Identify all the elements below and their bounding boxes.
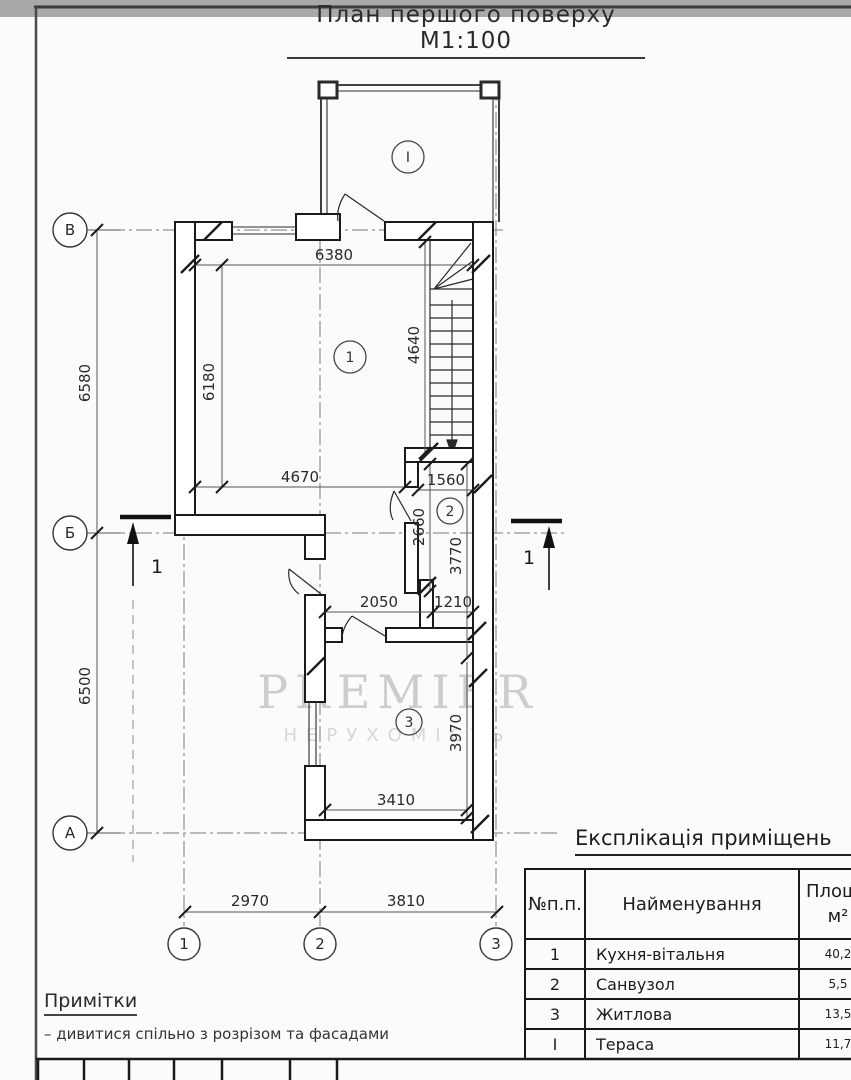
- room-label-terrace: I: [406, 150, 410, 166]
- axis-label-row: В: [65, 221, 75, 239]
- door-leaf-bathroom: [394, 491, 411, 521]
- title-block: [36, 1059, 851, 1080]
- wall: [175, 515, 325, 535]
- terrace-pillar-left: [319, 82, 337, 98]
- wall: [405, 462, 418, 487]
- dimension-label: 4640: [405, 326, 423, 364]
- dimension-label: 6580: [76, 364, 94, 402]
- room-number: I: [525, 1029, 585, 1059]
- dimension-label: 6500: [76, 667, 94, 705]
- room-area: 11,7: [799, 1029, 851, 1059]
- dimension-label: 1210: [434, 593, 472, 611]
- scanned-floor-plan-page: { "title": "План першого поверху М1:100"…: [0, 0, 851, 1080]
- explication-title: Експлікація приміщень: [575, 826, 851, 856]
- explication-header-row: №п.п. Найменування Площа м²: [525, 869, 851, 939]
- room-number: 1: [525, 939, 585, 969]
- column-header-name: Найменування: [585, 869, 799, 939]
- axis-label-row: А: [65, 824, 76, 842]
- room-name: Санвузол: [585, 969, 799, 999]
- notes-title: Примітки: [44, 990, 137, 1016]
- table-row: 3 Житлова 13,5: [525, 999, 851, 1029]
- column-header-num: №п.п.: [525, 869, 585, 939]
- room-area: 40,2: [799, 939, 851, 969]
- staircase: [430, 240, 473, 455]
- section-arrow: [543, 526, 555, 548]
- dimension-label: 6380: [315, 246, 353, 264]
- dimension-label: 3770: [447, 537, 465, 575]
- axis-markers: [53, 213, 512, 960]
- room-name: Тераса: [585, 1029, 799, 1059]
- walls: [175, 214, 493, 840]
- explication-table: №п.п. Найменування Площа м² 1 Кухня-віта…: [524, 868, 851, 1060]
- room-label-bath: 2: [446, 504, 455, 520]
- room-name: Кухня-вітальня: [585, 939, 799, 969]
- wall: [473, 222, 493, 840]
- room-label-living: 3: [405, 715, 414, 731]
- wall: [325, 628, 342, 642]
- room-name: Житлова: [585, 999, 799, 1029]
- section-label: 1: [523, 547, 535, 569]
- axis-label-col: 3: [491, 935, 501, 953]
- wall: [305, 595, 325, 702]
- room-area: 5,5: [799, 969, 851, 999]
- door-leaf-entrance: [289, 569, 321, 594]
- dimension-label: 4670: [281, 468, 319, 486]
- dimension-label: 3810: [387, 892, 425, 910]
- door-swing-living: [342, 616, 352, 636]
- room-label-kitchen: 1: [346, 350, 355, 366]
- dimension-label: 2050: [360, 593, 398, 611]
- axis-label-col: 1: [179, 935, 189, 953]
- door-swing-bathroom: [390, 491, 394, 520]
- note-item: – дивитися спільно з розрізом та фасадам…: [44, 1025, 389, 1043]
- wall: [405, 448, 473, 462]
- room-area: 13,5: [799, 999, 851, 1029]
- table-row: I Тераса 11,7: [525, 1029, 851, 1059]
- room-number: 2: [525, 969, 585, 999]
- table-row: 2 Санвузол 5,5: [525, 969, 851, 999]
- watermark: PREMIER НЕРУХОМІСТЬ: [257, 665, 539, 746]
- wall: [386, 628, 473, 642]
- door-leaf-terrace: [345, 194, 384, 221]
- dimension-label: 1560: [427, 471, 465, 489]
- column-header-area: Площа м²: [799, 869, 851, 939]
- dimension-label: 2660: [410, 508, 428, 546]
- door-leaf-living: [352, 616, 385, 636]
- dimension-label: 3410: [377, 791, 415, 809]
- section-label: 1: [151, 556, 163, 578]
- wall: [305, 820, 493, 840]
- wall: [305, 535, 325, 559]
- column-header-area-word: Площа: [801, 879, 851, 904]
- page-title: План першого поверху М1:100: [287, 2, 645, 59]
- room-number: 3: [525, 999, 585, 1029]
- wall: [296, 214, 340, 240]
- axis-label-col: 2: [315, 935, 325, 953]
- dimension-label: 6180: [200, 363, 218, 401]
- dimension-label: 3970: [447, 714, 465, 752]
- notes-section: Примітки – дивитися спільно з розрізом т…: [44, 990, 389, 1043]
- column-header-area-unit: м²: [801, 904, 851, 929]
- dimension-label: 2970: [231, 892, 269, 910]
- table-row: 1 Кухня-вітальня 40,2: [525, 939, 851, 969]
- watermark-line1: PREMIER: [257, 665, 539, 719]
- axis-label-row: Б: [65, 524, 75, 542]
- terrace-pillar-right: [481, 82, 499, 98]
